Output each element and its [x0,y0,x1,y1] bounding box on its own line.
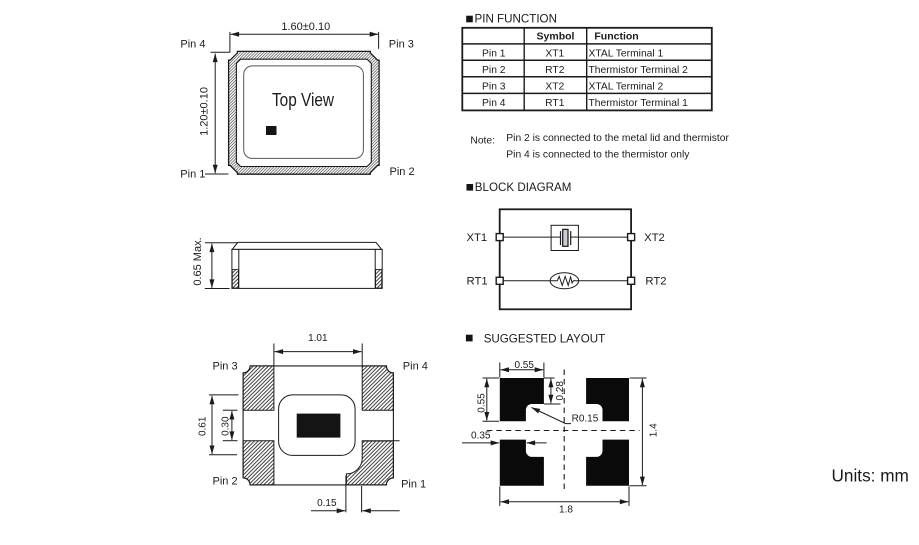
svg-text:Top View: Top View [272,90,335,110]
svg-text:Pin 1: Pin 1 [180,168,205,180]
svg-text:RT1: RT1 [467,276,488,288]
svg-text:Function: Function [594,31,638,43]
svg-text:0.65 Max.: 0.65 Max. [192,237,204,285]
svg-text:RT2: RT2 [545,65,565,76]
svg-text:XT2: XT2 [545,81,564,92]
svg-text:Thermistor Terminal 2: Thermistor Terminal 2 [589,65,689,76]
svg-text:0.15: 0.15 [317,498,337,509]
svg-text:Thermistor Terminal 1: Thermistor Terminal 1 [589,98,689,109]
svg-text:XT1: XT1 [467,232,488,244]
svg-text:Pin 4: Pin 4 [403,360,428,372]
svg-text:PIN FUNCTION: PIN FUNCTION [475,13,557,26]
svg-text:XTAL Terminal 2: XTAL Terminal 2 [589,81,664,92]
svg-text:XT1: XT1 [545,48,564,59]
svg-text:Note:: Note: [470,135,495,146]
svg-text:0.55: 0.55 [477,393,488,413]
svg-text:1.4: 1.4 [649,423,660,437]
svg-text:Pin 3: Pin 3 [389,39,414,51]
svg-text:0.30: 0.30 [220,416,231,436]
svg-text:Pin 2: Pin 2 [390,166,415,178]
svg-text:1.01: 1.01 [308,333,328,344]
svg-text:1.20±0.10: 1.20±0.10 [199,87,211,136]
svg-text:1.60±0.10: 1.60±0.10 [281,21,330,33]
svg-text:XT2: XT2 [644,232,665,244]
svg-text:RT1: RT1 [545,98,565,109]
svg-text:0.35: 0.35 [471,430,491,441]
svg-text:Pin 3: Pin 3 [482,81,506,92]
svg-text:0.61: 0.61 [198,416,209,436]
svg-text:1.8: 1.8 [559,505,573,516]
svg-text:Symbol: Symbol [537,31,575,43]
svg-text:Pin 2: Pin 2 [213,476,238,488]
svg-text:0.28: 0.28 [555,381,566,401]
svg-text:Pin 1: Pin 1 [482,48,506,59]
svg-text:Pin 2: Pin 2 [482,65,506,76]
svg-text:Pin 1: Pin 1 [401,479,426,491]
svg-text:RT2: RT2 [645,276,666,288]
svg-text:Pin 4: Pin 4 [482,98,506,109]
svg-text:Pin 4: Pin 4 [180,39,205,51]
svg-text:BLOCK DIAGRAM: BLOCK DIAGRAM [475,181,572,194]
svg-text:Units: mm: Units: mm [832,466,909,486]
svg-text:Pin 2 is connected to the meta: Pin 2 is connected to the metal lid and … [506,133,729,144]
svg-text:SUGGESTED LAYOUT: SUGGESTED LAYOUT [484,333,606,346]
svg-text:Pin 3: Pin 3 [213,360,238,372]
svg-text:Pin 4 is connected to the ther: Pin 4 is connected to the thermistor onl… [506,149,690,160]
svg-text:XTAL Terminal 1: XTAL Terminal 1 [589,48,664,59]
svg-text:R0.15: R0.15 [572,414,599,425]
